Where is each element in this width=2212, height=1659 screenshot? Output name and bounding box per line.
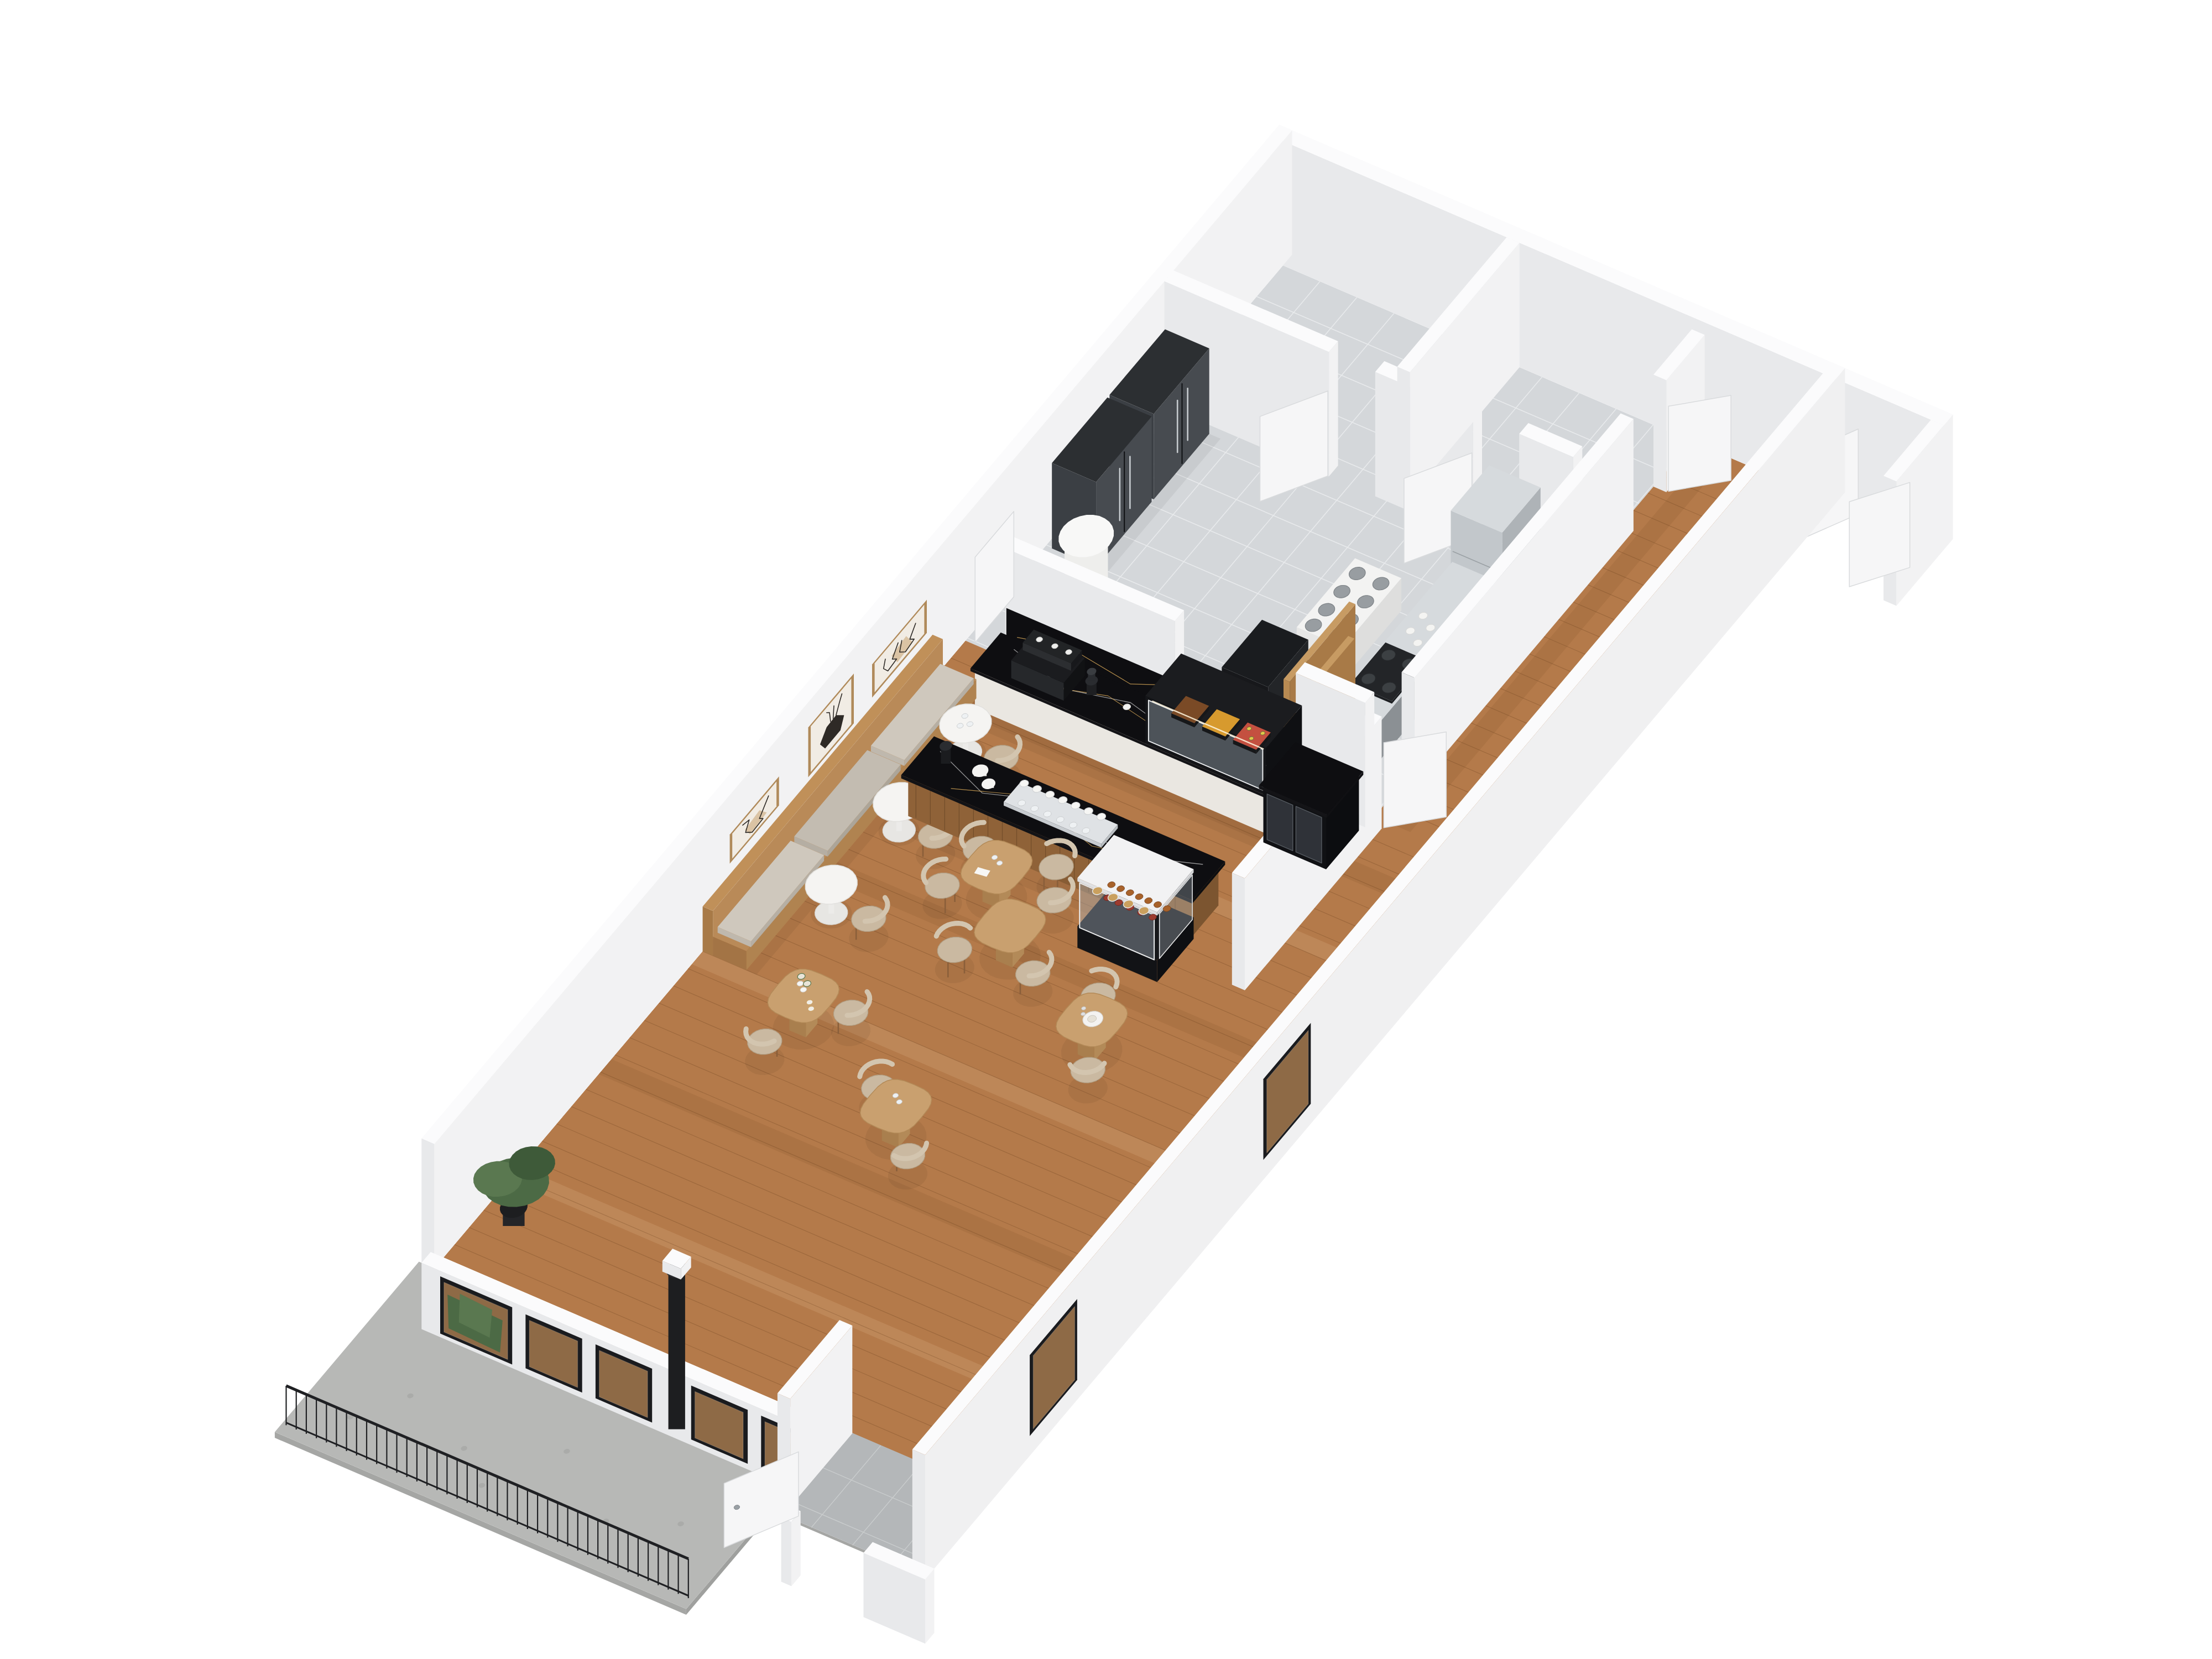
candy-dots (1260, 732, 1265, 735)
flower-vases (800, 987, 806, 992)
latte-cups (806, 1000, 812, 1005)
vestibule-front-wall-front (781, 1517, 792, 1586)
espresso-cups-row (1071, 802, 1080, 809)
cafe-floorplan-render (0, 0, 2212, 1659)
espresso-cups-row (1046, 791, 1055, 798)
counter-cup (1123, 704, 1131, 709)
left-wall-front (421, 1139, 434, 1269)
syrup-bottles (1154, 902, 1162, 908)
syrup-bottles (1117, 886, 1125, 892)
glass-cups-row (1031, 806, 1039, 811)
espresso-cups (1052, 644, 1058, 649)
corridor-door-leaf (1668, 395, 1731, 491)
floorplan-stage (0, 0, 2212, 1659)
glass-cups-row (1070, 822, 1077, 828)
glass-cups-row (1018, 800, 1026, 806)
candy-dots (1247, 727, 1251, 731)
service-back-wall-extension-side (1944, 415, 1953, 550)
syrup-bottles (1149, 914, 1157, 920)
cookie-jars (1124, 900, 1134, 908)
champagne-flutes (997, 861, 1003, 865)
corridor-wall-front (1232, 873, 1245, 990)
espresso-cups-row (1032, 786, 1041, 792)
candy-dots (1249, 737, 1254, 740)
espresso-cups (1036, 637, 1042, 642)
cookie-jars (1093, 887, 1103, 895)
flower-blooms (804, 980, 811, 987)
espresso-cups-row (1084, 808, 1093, 815)
cafe-kitchen-wall-side (1365, 692, 1375, 828)
facade-column-side (669, 1270, 685, 1430)
vestibule-front-wall-side (791, 1511, 801, 1587)
kitchen-jars (1413, 640, 1422, 646)
syrup-bottles (1135, 894, 1143, 900)
cookie-jars (1139, 907, 1149, 915)
entry-door-handle (734, 1505, 739, 1510)
kitchen-jars (1426, 624, 1435, 631)
glass-cups-row (1044, 811, 1051, 817)
corridor-door-leaf (1384, 732, 1446, 828)
syrup-bottles (1115, 900, 1123, 906)
water-glasses (957, 723, 963, 728)
glass-cups-row (1057, 817, 1065, 822)
right-wall-front (912, 1449, 925, 1579)
flower-vases (797, 981, 803, 986)
banquette-backrest-front (703, 906, 713, 956)
corridor-wall-front (1653, 374, 1666, 492)
syrup-bottles (1126, 890, 1134, 896)
syrup-bottles (1145, 898, 1152, 904)
syrup-bottles (1108, 882, 1115, 888)
wine-glasses (896, 1100, 902, 1104)
water-glasses (967, 722, 973, 727)
flower-blooms (797, 973, 805, 979)
espresso-cups-row (1058, 797, 1067, 804)
espresso-cups (1066, 650, 1072, 655)
latte-cups (808, 1006, 814, 1011)
water-glasses (962, 713, 968, 718)
glass-cups-row (1082, 828, 1090, 833)
kitchen-jars (1406, 628, 1415, 634)
coffee-cup (1088, 1015, 1097, 1022)
espresso-cups-row (1020, 780, 1029, 787)
vestibule-front-wall-side (925, 1569, 935, 1644)
cookie-jars (1108, 894, 1118, 901)
salt-pepper (1082, 1006, 1086, 1010)
kitchen-jars (1419, 613, 1428, 619)
syrup-bottles (1163, 906, 1171, 912)
salt-pepper (1081, 1013, 1086, 1016)
wine-glasses (893, 1093, 898, 1098)
champagne-flutes (992, 855, 997, 860)
espresso-cups-row (1097, 813, 1106, 820)
backrooms-partition-wall-side (1329, 341, 1338, 477)
